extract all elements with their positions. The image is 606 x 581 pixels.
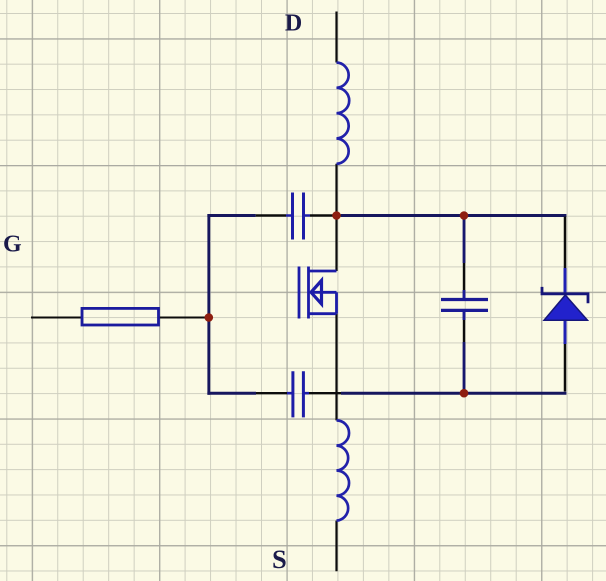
svg-text:G: G [3,231,22,257]
svg-text:S: S [272,544,287,574]
svg-text:D: D [285,11,302,37]
